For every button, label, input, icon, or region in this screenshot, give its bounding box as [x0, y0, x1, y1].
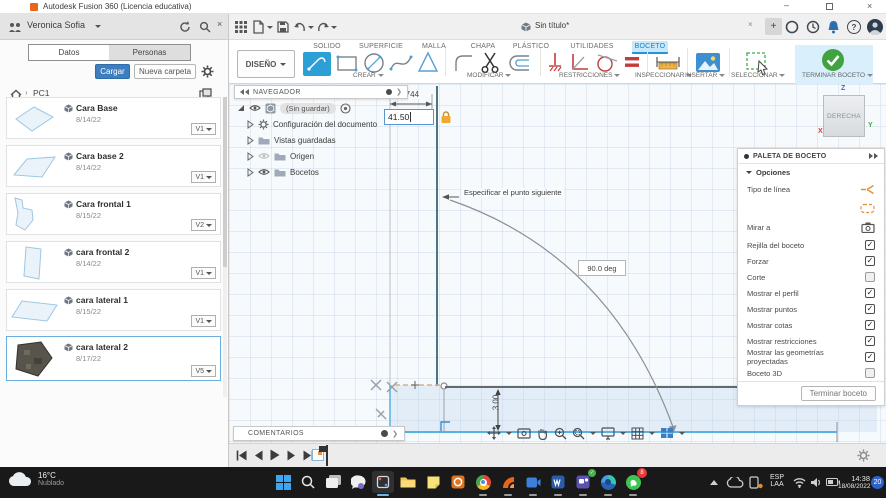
cloud-icon: [8, 472, 32, 487]
option-show-projected[interactable]: Mostrar las geometrías proyectadas✓: [738, 349, 884, 365]
people-icon: [8, 22, 23, 32]
tangent-constraint-tool[interactable]: [595, 51, 619, 74]
data-panel: Veronica Sofia × Datos Personas Cargar N…: [0, 14, 229, 467]
fillet-tool[interactable]: [453, 53, 475, 73]
weather-temp: 16°C: [38, 471, 64, 480]
file-card[interactable]: Cara base 2 8/14/22 V1: [6, 145, 221, 187]
option-show-profile[interactable]: Mostrar el perfil✓: [738, 285, 884, 301]
whatsapp-badge: 8: [637, 468, 647, 478]
design-cube-icon: [64, 200, 73, 209]
activate-radio-icon[interactable]: [340, 103, 351, 114]
viewcube-face-label: DERECHA: [827, 113, 861, 120]
navigator-item-label: Vistas guardadas: [274, 136, 336, 145]
close-window-icon[interactable]: ×: [867, 1, 872, 11]
upload-button[interactable]: Cargar: [95, 64, 130, 79]
caret-down-icon: [206, 320, 212, 323]
caret-down-icon[interactable]: [506, 432, 512, 435]
phone-link-icon[interactable]: [749, 476, 763, 489]
navigator-row-origin[interactable]: Origen: [247, 148, 314, 164]
timeline-controls: [236, 449, 314, 461]
taskbar-edge-icon[interactable]: [597, 471, 619, 493]
taskbar-search-icon[interactable]: [297, 471, 319, 493]
comment-bubble-icon[interactable]: [381, 430, 388, 437]
speaker-icon[interactable]: [810, 477, 822, 488]
collapse-chevrons-icon[interactable]: [240, 89, 249, 95]
caret-down-icon[interactable]: [649, 432, 655, 435]
workspace-selector[interactable]: DISEÑO: [237, 50, 295, 78]
file-card[interactable]: Cara Base 8/14/22 V1: [6, 97, 221, 139]
finish-sketch-button[interactable]: Terminar boceto: [801, 386, 876, 401]
taskbar-whatsapp-icon[interactable]: 8: [622, 471, 644, 493]
file-date: 8/14/22: [76, 163, 101, 172]
language-indicator[interactable]: ESP LAA: [770, 474, 784, 488]
option-show-constraints[interactable]: Mostrar restricciones✓: [738, 333, 884, 349]
section-caret-icon: [746, 171, 752, 174]
navigator-root-row[interactable]: (Sin guardar): [237, 100, 351, 116]
caret-down-icon: [206, 128, 212, 131]
thumbnail-cara-lateral-2: [8, 338, 60, 380]
group-label-seleccionar[interactable]: SELECCIONAR: [731, 72, 785, 79]
thumbnail-cara-base-2: [8, 147, 60, 187]
text-cursor: [410, 112, 411, 122]
taskbar-camera-app-icon[interactable]: [522, 471, 544, 493]
line-tool-active[interactable]: [303, 52, 331, 76]
job-status-clock-icon[interactable]: [806, 20, 820, 34]
redo-icon[interactable]: [317, 22, 330, 33]
windows-taskbar: 16°C Nublado ✓ 8 ESP LAA 14:38: [0, 467, 886, 498]
model-canvas[interactable]: 3.744 41.50 Especificar el punto siguien…: [229, 84, 886, 443]
navigator-item-label: Bocetos: [290, 168, 319, 177]
angle-input[interactable]: 90.0 deg: [578, 260, 626, 276]
file-card[interactable]: Cara frontal 1 8/15/22 V2: [6, 193, 221, 235]
expand-chevrons-icon[interactable]: [869, 153, 878, 159]
trim-scissors-tool[interactable]: [479, 51, 501, 74]
timeline-playhead[interactable]: [319, 445, 329, 466]
option-slice[interactable]: Corte: [738, 269, 884, 285]
caret-down-icon: [206, 176, 212, 179]
version-chip[interactable]: V2: [191, 219, 216, 231]
caret-down-icon: [280, 63, 286, 66]
polygon-tool[interactable]: [417, 51, 439, 74]
file-name: cara lateral 2: [76, 342, 128, 352]
visibility-eye-icon[interactable]: [258, 168, 270, 176]
option-construction[interactable]: [738, 199, 884, 218]
design-cube-icon: [64, 296, 73, 305]
divider: [445, 48, 446, 76]
file-name: Cara Base: [76, 103, 118, 113]
app-icon: [30, 3, 38, 11]
file-name: Cara base 2: [76, 151, 124, 161]
window-title: Autodesk Fusion 360 (Licencia educativa): [43, 2, 192, 11]
navigator-item-label: Origen: [290, 152, 314, 161]
finish-sketch-check-icon[interactable]: [821, 48, 845, 72]
viewports-icon[interactable]: [660, 427, 674, 439]
options-section-header[interactable]: Opciones: [738, 164, 884, 180]
settings-gear-icon: [258, 119, 269, 130]
design-cube-icon: [64, 152, 73, 161]
file-card-selected[interactable]: cara lateral 2 8/17/22 V5: [6, 336, 221, 381]
axis-z-label: Z: [841, 85, 845, 92]
comments-label: COMENTARIOS: [248, 430, 304, 437]
look-at-camera-icon[interactable]: [861, 222, 875, 233]
thumbnail-cara-frontal-2: [8, 243, 60, 283]
visibility-eye-icon[interactable]: [249, 104, 261, 112]
timeline-settings-gear-icon[interactable]: [857, 449, 870, 462]
caret-down-icon: [206, 224, 212, 227]
version-chip[interactable]: V1: [191, 171, 216, 183]
fix-constraint-tool[interactable]: [547, 51, 563, 74]
sketch-palette: PALETA DE BOCETO Opciones Tipo de línea …: [737, 148, 885, 406]
insert-image-tool[interactable]: [695, 52, 721, 73]
breadcrumb-chevron-icon: ›: [25, 88, 28, 97]
design-cube-icon: [64, 343, 73, 352]
divider: [540, 48, 541, 76]
file-menu-icon[interactable]: [253, 20, 264, 34]
palette-dot-icon: [744, 154, 749, 159]
file-date: 8/17/22: [76, 354, 101, 363]
linetype-icon[interactable]: [860, 184, 875, 195]
help-icon[interactable]: ?: [847, 20, 861, 34]
navigator-title: NAVEGADOR: [253, 89, 301, 96]
look-at-icon[interactable]: [517, 427, 531, 439]
language-line1: ESP: [770, 474, 784, 481]
file-name: cara lateral 1: [76, 295, 128, 305]
wifi-icon[interactable]: [793, 477, 806, 488]
document-tab[interactable]: Sin título*: [535, 21, 569, 30]
collapsed-triangle-icon[interactable]: [247, 136, 254, 145]
checkbox[interactable]: ✓: [865, 304, 875, 314]
group-label-crear[interactable]: CREAR: [353, 72, 384, 79]
tooltip: Especificar el punto siguiente: [462, 188, 564, 197]
viewcube[interactable]: DERECHA: [823, 95, 865, 137]
ribbon-tab-solido[interactable]: SOLIDO: [306, 41, 348, 52]
file-caret-down-icon[interactable]: [267, 26, 273, 29]
user-caret-down-icon[interactable]: [95, 25, 101, 28]
option-3d-sketch[interactable]: Boceto 3D: [738, 365, 884, 381]
notification-count-badge[interactable]: 20: [871, 476, 884, 489]
tray-time: 14:38: [838, 474, 870, 483]
version-chip[interactable]: V1: [191, 123, 216, 135]
data-panel-header: Veronica Sofia ×: [0, 14, 228, 40]
language-line2: LAA: [770, 481, 784, 488]
teams-status-badge: ✓: [588, 469, 596, 477]
title-bar: Autodesk Fusion 360 (Licencia educativa)…: [0, 0, 886, 14]
grid-settings-icon[interactable]: [631, 427, 644, 440]
collapsed-triangle-icon[interactable]: [247, 120, 254, 129]
maximize-icon[interactable]: [826, 3, 833, 10]
checkbox[interactable]: ✓: [865, 320, 875, 330]
checkbox[interactable]: ✓: [865, 256, 875, 266]
checkbox[interactable]: ✓: [865, 352, 875, 362]
group-label-restricciones[interactable]: RESTRICCIONES: [559, 72, 620, 79]
onedrive-cloud-icon[interactable]: [726, 477, 744, 488]
unsaved-document-label: (Sin guardar): [280, 103, 336, 114]
notifications-bell-icon[interactable]: [827, 20, 840, 34]
sync-status-icon[interactable]: [785, 20, 799, 34]
app-grid-icon[interactable]: [235, 21, 247, 33]
checkbox[interactable]: ✓: [865, 288, 875, 298]
file-card[interactable]: cara lateral 1 8/15/22 V1: [6, 289, 221, 331]
navigator-row-sketches[interactable]: Bocetos: [247, 164, 319, 180]
close-tab-icon[interactable]: ×: [748, 20, 753, 29]
thumbnail-cara-lateral-1: [8, 291, 60, 331]
taskbar-powerpoint-icon[interactable]: [447, 471, 469, 493]
sketch-palette-title: PALETA DE BOCETO: [753, 153, 826, 160]
option-linetype[interactable]: Tipo de línea: [738, 180, 884, 199]
file-date: 8/14/22: [76, 115, 101, 124]
taskbar-task-view-icon[interactable]: [322, 471, 344, 493]
option-sketch-grid[interactable]: Rejilla del boceto✓: [738, 237, 884, 253]
resize-handle-icon[interactable]: ❯: [392, 430, 398, 438]
refresh-icon[interactable]: [179, 21, 191, 33]
taskbar-chrome-icon[interactable]: [472, 471, 494, 493]
timeline-bar: [229, 443, 886, 467]
caret-down-icon[interactable]: [679, 432, 685, 435]
group-label-modificar[interactable]: MODIFICAR: [467, 72, 511, 79]
document-cube-icon: [521, 22, 531, 32]
step-forward-icon[interactable]: [287, 450, 296, 461]
taskbar-word-icon[interactable]: [547, 471, 569, 493]
thumbnail-cara-base: [8, 99, 60, 139]
dimension-input[interactable]: 41.50: [384, 109, 434, 125]
version-chip[interactable]: V1: [191, 267, 216, 279]
taskbar-chat-icon[interactable]: [347, 471, 369, 493]
folder-icon: [274, 168, 286, 177]
play-icon[interactable]: [270, 449, 280, 461]
checkbox[interactable]: [865, 368, 875, 378]
group-label-inspeccionar[interactable]: INSPECCIONAR: [635, 72, 692, 79]
resize-handle-icon[interactable]: ❯: [396, 88, 402, 96]
tab-datos[interactable]: Datos: [28, 44, 110, 61]
view-toolbar: [487, 426, 685, 440]
caret-down-icon: [206, 370, 212, 373]
sketch-palette-header[interactable]: PALETA DE BOCETO: [738, 149, 884, 164]
option-look-at[interactable]: Mirar a: [738, 218, 884, 237]
axis-x-label: X: [818, 128, 823, 135]
document-cube-icon: [265, 103, 276, 114]
thumbnail-cara-frontal-1: [8, 195, 60, 235]
divider: [729, 48, 730, 76]
caret-down-icon[interactable]: [590, 432, 596, 435]
navigator-row-saved-views[interactable]: Vistas guardadas: [247, 132, 336, 148]
taskbar-windows-icon[interactable]: [272, 471, 294, 493]
undo-icon[interactable]: [293, 22, 306, 33]
search-icon[interactable]: [199, 21, 211, 33]
scrollbar[interactable]: [223, 97, 227, 397]
undo-caret-down-icon[interactable]: [308, 26, 314, 29]
zoom-window-icon[interactable]: [572, 427, 585, 440]
perpendicular-constraint-tool[interactable]: [569, 52, 591, 73]
checkbox[interactable]: [865, 272, 875, 282]
folder-icon: [274, 152, 286, 161]
construction-line-icon[interactable]: [860, 203, 875, 214]
step-back-icon[interactable]: [254, 450, 263, 461]
zoom-icon[interactable]: [554, 427, 567, 440]
minimize-icon[interactable]: –: [784, 0, 789, 10]
navigator-row-doc-settings[interactable]: Configuración del documento: [247, 116, 377, 132]
caret-down-icon[interactable]: [620, 432, 626, 435]
orbit-icon[interactable]: [487, 426, 501, 440]
taskbar-fusion-360-icon[interactable]: [497, 471, 519, 493]
pan-hand-icon[interactable]: [536, 427, 549, 440]
new-folder-button[interactable]: Nueva carpeta: [134, 64, 196, 79]
rectangle-tool[interactable]: [336, 55, 358, 72]
equal-constraint-tool[interactable]: [623, 55, 641, 69]
design-cube-icon: [64, 104, 73, 113]
lock-icon[interactable]: [440, 110, 452, 124]
version-chip[interactable]: V5: [191, 365, 216, 377]
visibility-eye-off-icon[interactable]: [258, 152, 270, 160]
spline-tool[interactable]: [389, 53, 413, 73]
group-label-terminar-boceto[interactable]: TERMINAR BOCETO: [802, 72, 873, 79]
option-show-dimensions[interactable]: Mostrar cotas✓: [738, 317, 884, 333]
measure-tool[interactable]: [655, 53, 681, 72]
option-show-points[interactable]: Mostrar puntos✓: [738, 301, 884, 317]
options-dot-icon[interactable]: [386, 89, 392, 95]
user-name[interactable]: Veronica Sofia: [27, 20, 85, 30]
caret-down-icon: [206, 272, 212, 275]
navigator-header[interactable]: NAVEGADOR ❯: [234, 85, 408, 99]
taskbar-explorer-icon[interactable]: [397, 471, 419, 493]
tray-date: 18/08/2022: [838, 483, 870, 490]
weather-condition: Nublado: [38, 480, 64, 487]
file-date: 8/15/22: [76, 211, 101, 220]
avatar[interactable]: [867, 19, 883, 35]
file-name: Cara frontal 1: [76, 199, 131, 209]
version-chip[interactable]: V1: [191, 315, 216, 327]
taskbar-sticky-notes-icon[interactable]: [422, 471, 444, 493]
expanded-triangle-icon[interactable]: [237, 104, 245, 112]
group-label-insertar[interactable]: INSERTAR: [685, 72, 725, 79]
collapsed-triangle-icon[interactable]: [247, 152, 254, 161]
file-card[interactable]: cara frontal 2 8/14/22 V1: [6, 241, 221, 283]
axis-y-label: Y: [868, 122, 873, 129]
tray-chevron-up-icon[interactable]: [710, 480, 718, 485]
app-tab-bar: Sin título* × + ?: [229, 14, 886, 40]
collapsed-triangle-icon[interactable]: [247, 168, 254, 177]
go-to-start-icon[interactable]: [236, 450, 247, 461]
fusion-360-window: Autodesk Fusion 360 (Licencia educativa)…: [0, 0, 886, 498]
option-snap[interactable]: Forzar✓: [738, 253, 884, 269]
taskbar-snipping-tool-icon[interactable]: [372, 471, 394, 493]
design-cube-icon: [64, 248, 73, 257]
data-settings-gear-icon[interactable]: [201, 65, 214, 78]
display-settings-icon[interactable]: [601, 427, 615, 440]
navigator-item-label: Configuración del documento: [273, 120, 377, 129]
file-name: cara frontal 2: [76, 247, 129, 257]
file-date: 8/14/22: [76, 259, 101, 268]
tab-personas[interactable]: Personas: [109, 44, 191, 61]
options-section-title: Opciones: [756, 168, 790, 177]
redo-caret-down-icon[interactable]: [331, 26, 337, 29]
taskbar-teams-icon[interactable]: ✓: [572, 471, 594, 493]
comments-bar[interactable]: COMENTARIOS ❯: [233, 426, 405, 441]
weather-widget[interactable]: 16°C Nublado: [8, 471, 64, 487]
checkbox[interactable]: ✓: [865, 336, 875, 346]
folder-icon: [258, 136, 270, 145]
offset-tool[interactable]: [507, 53, 533, 73]
clock-widget[interactable]: 14:38 18/08/2022: [838, 474, 870, 490]
height-dimension-label: 3.00: [492, 390, 501, 416]
close-panel-icon[interactable]: ×: [217, 19, 222, 29]
ribbon: DISEÑO SOLIDO SUPERFICIE MALLA CHAPA PLÁ…: [229, 40, 886, 84]
new-tab-icon[interactable]: +: [765, 18, 782, 35]
checkbox[interactable]: ✓: [865, 240, 875, 250]
save-icon[interactable]: [277, 21, 289, 33]
file-date: 8/15/22: [76, 307, 101, 316]
